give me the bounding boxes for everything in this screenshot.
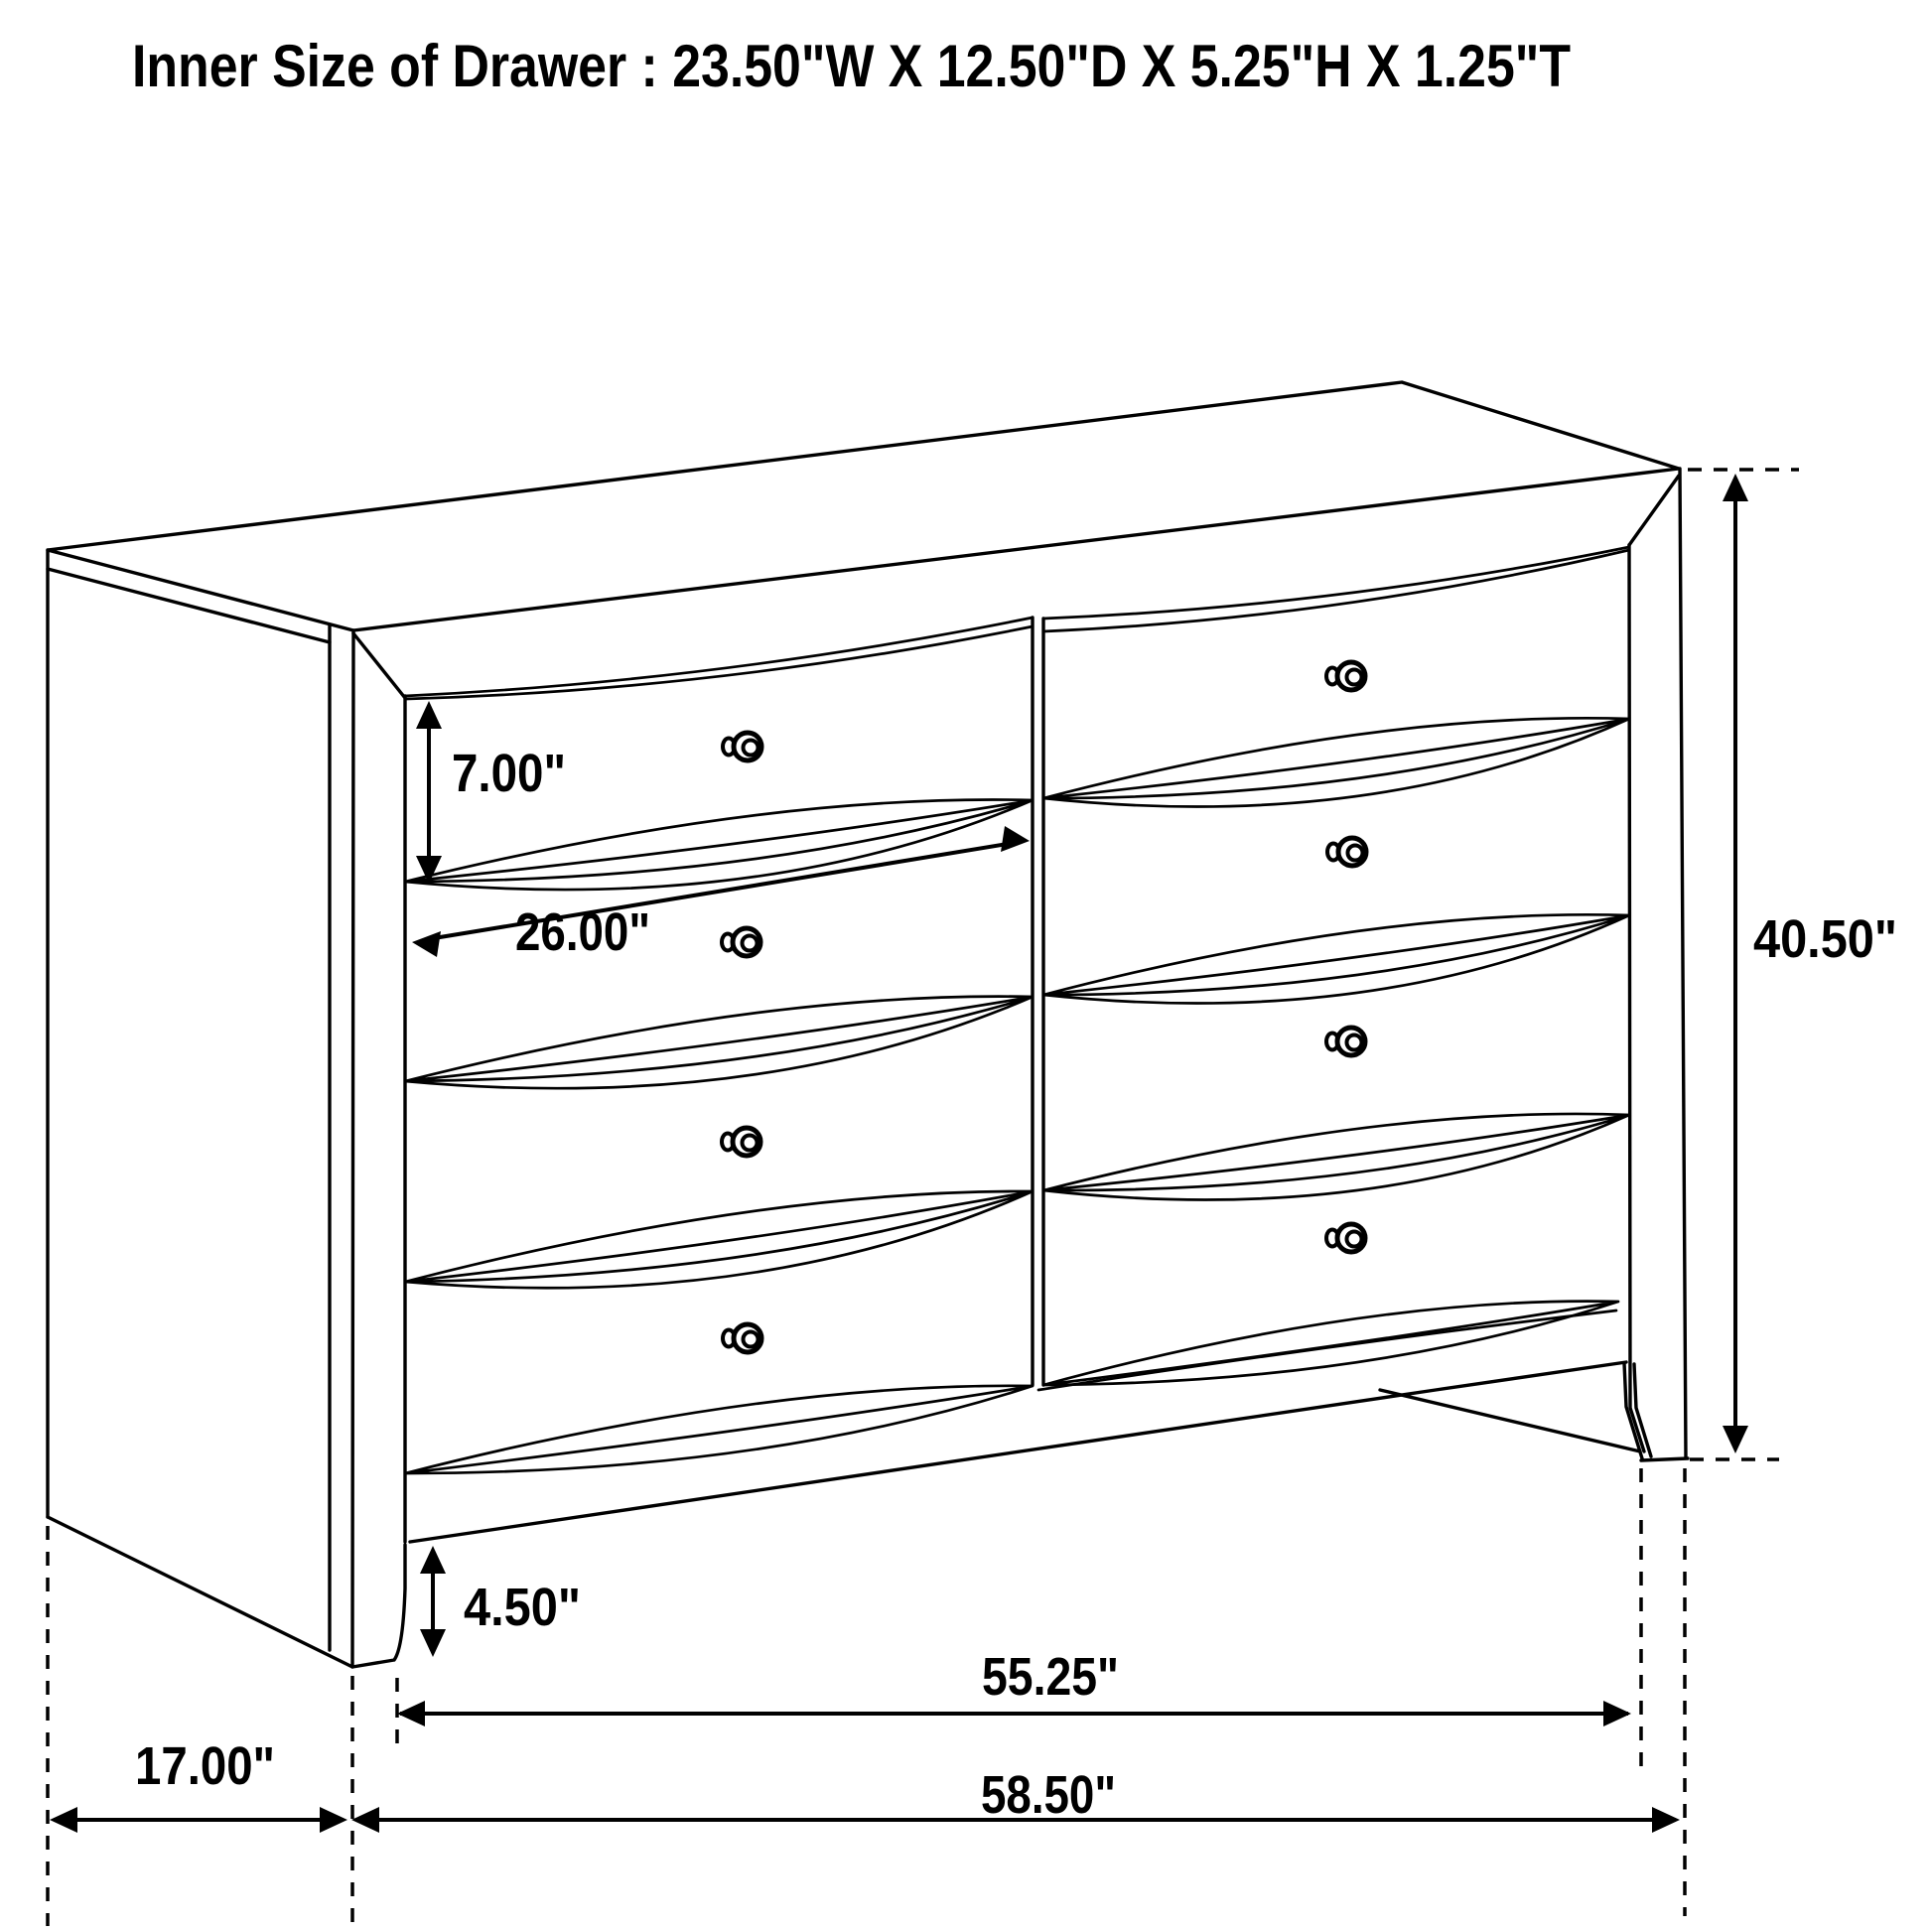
svg-text:17.00": 17.00" bbox=[135, 1736, 275, 1796]
svg-text:4.50": 4.50" bbox=[464, 1578, 581, 1637]
svg-text:7.00": 7.00" bbox=[452, 744, 566, 803]
svg-text:26.00": 26.00" bbox=[515, 902, 650, 962]
svg-text:40.50": 40.50" bbox=[1753, 909, 1897, 969]
svg-text:Inner Size of Drawer : 23.50"W: Inner Size of Drawer : 23.50"W X 12.50"D… bbox=[132, 33, 1571, 99]
svg-text:58.50": 58.50" bbox=[981, 1765, 1116, 1825]
svg-text:55.25": 55.25" bbox=[982, 1647, 1119, 1707]
